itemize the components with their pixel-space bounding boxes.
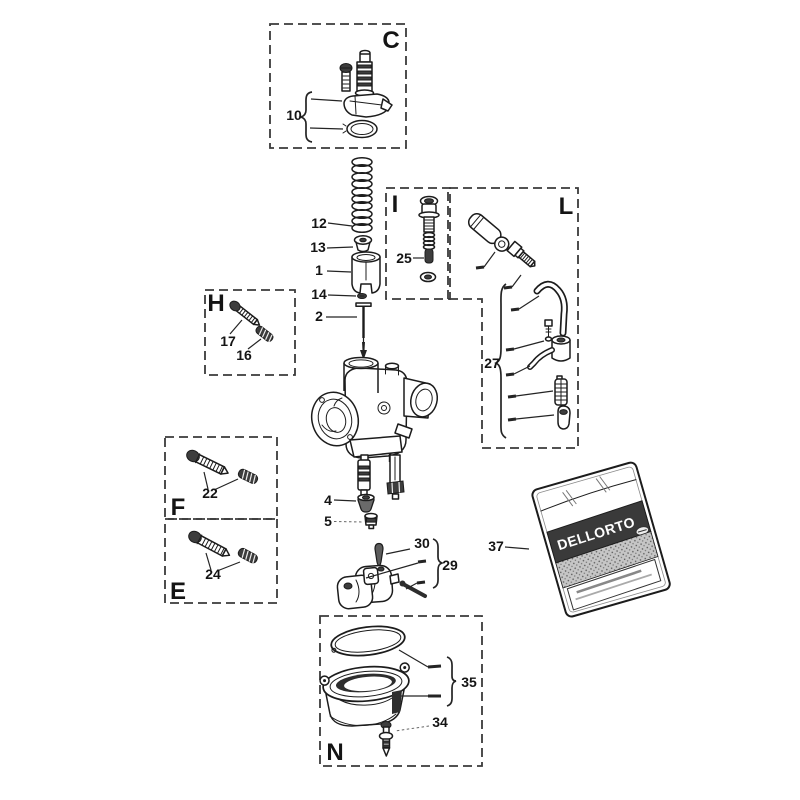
parts-diagram: C 10 — [0, 0, 800, 800]
part-label-29: 29 — [442, 557, 458, 573]
carburetor-body-illustration — [306, 342, 441, 499]
part-35-bowl-gasket — [330, 623, 407, 660]
kit-box-n: N 35 — [319, 616, 482, 766]
part-label-1: 1 — [315, 262, 323, 278]
part-24-spring — [237, 547, 259, 564]
part-4-atomizer: 4 — [324, 492, 374, 512]
part-27-grip — [466, 211, 513, 254]
part-label-4: 4 — [324, 492, 332, 508]
part-label-17: 17 — [220, 333, 236, 349]
part-27-valve — [545, 320, 552, 341]
part-35-float-bowl — [319, 663, 412, 726]
kit-box-h: H 17 16 — [205, 290, 295, 375]
part-label-27: 27 — [484, 355, 500, 371]
part-27-filter — [555, 376, 567, 405]
part-label-35: 35 — [461, 674, 477, 690]
kit-box-e: E 24 — [165, 519, 277, 605]
part-10-top-cover — [344, 94, 392, 117]
part-27-adjuster — [507, 241, 538, 270]
part-label-5: 5 — [324, 513, 332, 529]
part-label-22: 22 — [202, 485, 218, 501]
starter-jet-tube — [387, 455, 404, 499]
part-12-throttle-spring: 12 — [311, 158, 372, 233]
part-label-12: 12 — [311, 215, 327, 231]
part-5-main-jet: 5 — [324, 513, 377, 529]
part-10-plunger — [356, 51, 374, 97]
part-22-screw — [185, 448, 231, 478]
part-10-screw — [340, 64, 352, 92]
part-label-14: 14 — [311, 286, 327, 302]
kit-box-c: C 10 — [270, 24, 406, 148]
part-27-cap — [558, 406, 570, 429]
part-37-parts-bag: DELLORTO 37 — [488, 461, 671, 618]
part-10-gasket-ring — [343, 121, 377, 138]
part-label-16: 16 — [236, 347, 252, 363]
part-25-choke-plunger — [419, 197, 439, 282]
section-label-i: I — [392, 191, 399, 218]
part-label-30: 30 — [414, 535, 430, 551]
part-label-24: 24 — [205, 566, 221, 582]
section-label-h: H — [207, 290, 224, 317]
part-label-10: 10 — [286, 107, 302, 123]
section-label-e: E — [170, 578, 186, 605]
needle-jet-tube — [358, 455, 370, 495]
kit-box-f: F 22 — [165, 437, 277, 521]
kit-box-i: I 25 — [386, 188, 450, 299]
section-label-f: F — [171, 494, 186, 521]
kit-box-l: L — [448, 188, 578, 448]
part-10-leaders — [310, 99, 343, 129]
diagram-canvas: C 10 — [0, 0, 800, 800]
part-label-37: 37 — [488, 538, 504, 554]
part-29-float-assembly: 29 — [336, 539, 458, 610]
part-34-drain-screw: 34 — [380, 714, 448, 756]
part-16-spring — [255, 325, 275, 343]
part-35-brace — [447, 657, 456, 706]
part-24-screw — [187, 529, 232, 560]
section-label-n: N — [326, 739, 343, 766]
part-29-brace — [433, 539, 442, 588]
part-label-25: 25 — [396, 250, 412, 266]
section-label-l: L — [559, 193, 574, 220]
section-label-c: C — [382, 27, 399, 54]
part-label-13: 13 — [310, 239, 326, 255]
part-label-34: 34 — [432, 714, 448, 730]
part-17-screw — [228, 299, 262, 329]
part-10-brace — [301, 92, 312, 142]
part-22-spring — [237, 468, 259, 485]
part-label-2: 2 — [315, 308, 323, 324]
